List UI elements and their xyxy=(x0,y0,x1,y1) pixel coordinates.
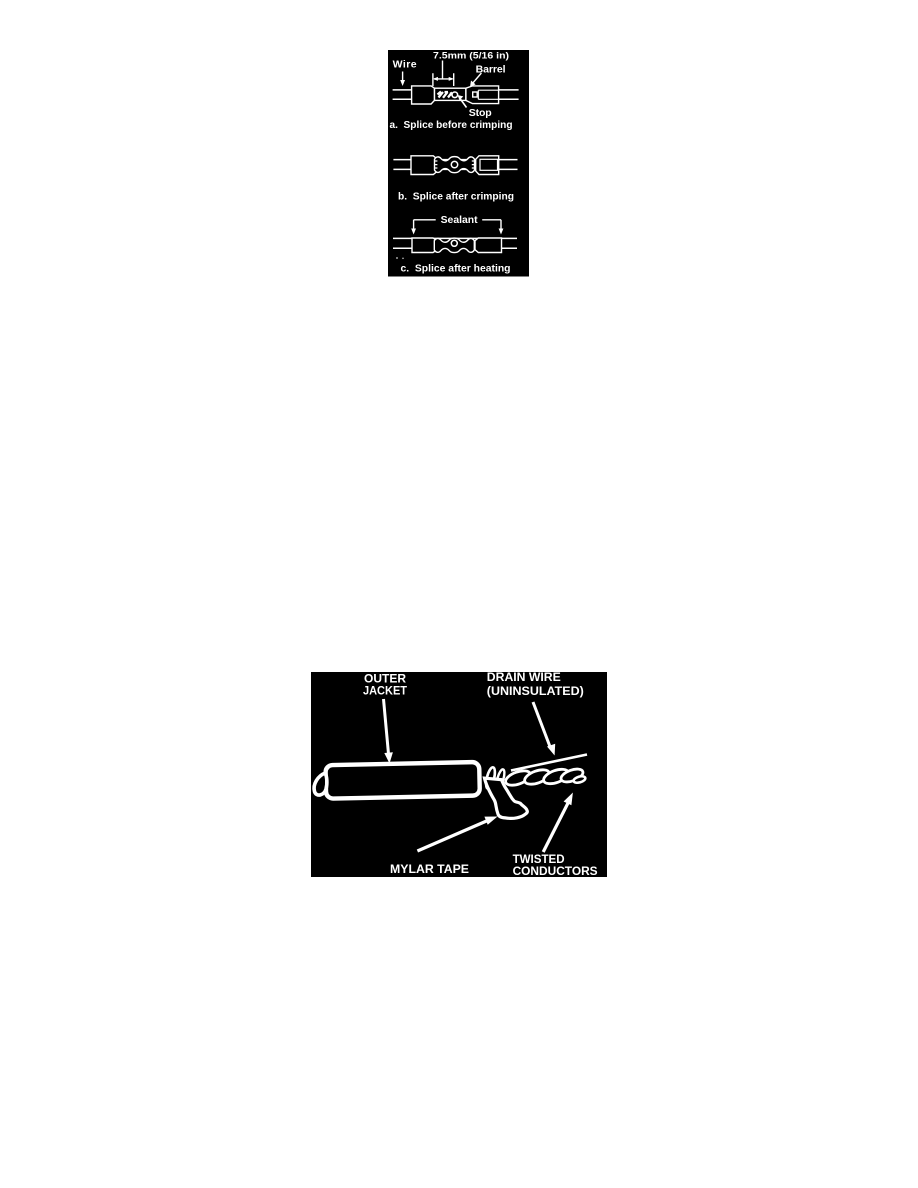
svg-text:a. Splice before crimping: a. Splice before crimping xyxy=(390,120,513,131)
svg-text:c. Splice after heating: c. Splice after heating xyxy=(401,263,511,274)
svg-text:Sealant: Sealant xyxy=(441,214,478,226)
svg-text:Barrel: Barrel xyxy=(476,64,506,76)
svg-text:DRAIN WIRE: DRAIN WIRE xyxy=(487,672,561,684)
svg-text:(UNINSULATED): (UNINSULATED) xyxy=(487,684,584,698)
svg-text:CONDUCTORS: CONDUCTORS xyxy=(513,864,598,877)
svg-text:Stop: Stop xyxy=(469,107,492,119)
svg-text:Wire: Wire xyxy=(393,59,417,71)
svg-text:b. Splice after crimping: b. Splice after crimping xyxy=(398,192,514,203)
svg-text:MYLAR TAPE: MYLAR TAPE xyxy=(390,862,469,876)
svg-text:7.5mm (5/16 in): 7.5mm (5/16 in) xyxy=(433,51,509,62)
svg-text:JACKET: JACKET xyxy=(363,684,408,698)
